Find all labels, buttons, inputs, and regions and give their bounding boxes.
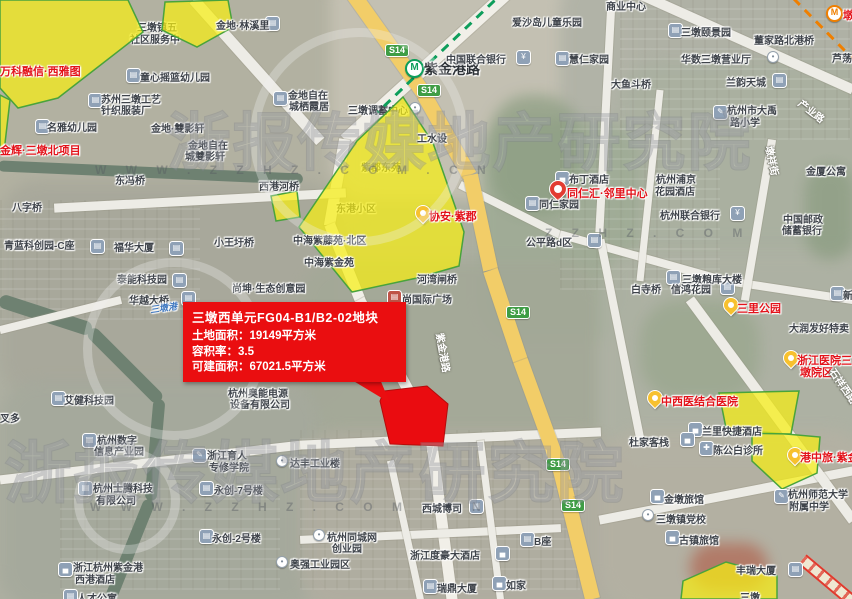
map-label[interactable]: 兰韵天城 [726, 74, 766, 89]
map-label[interactable]: 中海紫金苑 [304, 254, 354, 269]
satellite-map[interactable]: 三墩西单元FG04-B1/B2-02地块 土地面积：19149平方米 容积率：3… [0, 0, 852, 599]
map-label[interactable]: 人才公寓 [77, 590, 117, 599]
parcel-plot-ratio: 容积率：3.5 [192, 345, 397, 361]
map-label[interactable]: 金辉·三墩北项目 [0, 142, 81, 158]
map-label[interactable]: 尚国际广场 [402, 291, 452, 306]
map-label[interactable]: 同仁汇·邻里中心 [567, 185, 648, 201]
map-label[interactable]: 针织服装厂 [101, 102, 151, 117]
map-label[interactable]: 瑞鼎大厦 [437, 580, 477, 595]
watermark-url: W W W . Z Z H Z . C O M . C N [95, 163, 494, 177]
map-label[interactable]: 三墩 [740, 589, 760, 599]
parcel-title: 三墩西单元FG04-B1/B2-02地块 [192, 307, 397, 326]
map-label[interactable]: 福华大厦 [114, 239, 154, 254]
watermark-url: Z Z H Z . C O M [545, 226, 750, 240]
parcel-info-callout: 三墩西单元FG04-B1/B2-02地块 土地面积：19149平方米 容积率：3… [183, 302, 406, 382]
poi-icon[interactable]: ▤ [126, 68, 141, 83]
map-label[interactable]: 港中旅·紫金 [800, 449, 852, 465]
map-label[interactable]: 杭州联合银行 [660, 207, 720, 222]
map-label[interactable]: 白寺桥 [631, 281, 661, 296]
parcel-land-area: 土地面积：19149平方米 [192, 329, 397, 345]
map-label[interactable]: 万科融信·西雅图 [0, 63, 81, 79]
map-label[interactable]: 慧仁家园 [569, 51, 609, 66]
map-label[interactable]: 中国联合银行 [446, 51, 506, 66]
map-label[interactable]: 三墩镇党校 [656, 511, 706, 526]
poi-icon[interactable]: ▤ [423, 579, 438, 594]
map-label[interactable]: 如家 [506, 577, 526, 592]
map-label[interactable]: 三墩颐景园 [681, 24, 731, 39]
map-label[interactable]: 丰瑞大厦 [736, 562, 776, 577]
map-label[interactable]: 金地·林溪里 [216, 17, 269, 32]
poi-icon[interactable]: • [276, 556, 288, 568]
map-label[interactable]: 小王圩桥 [214, 234, 254, 249]
map-label[interactable]: 芦荡 [832, 50, 852, 65]
poi-icon[interactable]: ¥ [730, 206, 745, 221]
watermark-url: W W W . Z Z H Z . C O M . C N [90, 500, 489, 514]
poi-icon[interactable]: • [313, 529, 325, 541]
map-label[interactable]: 商业中心 [606, 0, 646, 13]
map-label[interactable]: 西港酒店 [75, 571, 115, 586]
poi-icon[interactable]: ¥ [516, 50, 531, 65]
poi-icon[interactable]: ▄ [680, 432, 695, 447]
poi-icon[interactable]: ▄ [492, 576, 507, 591]
poi-icon[interactable]: ▄ [495, 546, 510, 561]
map-label[interactable]: 附属中学 [789, 498, 829, 513]
poi-icon[interactable]: ▄ [650, 489, 665, 504]
metro-station-icon[interactable]: M [826, 5, 843, 22]
parcel-buildable-area: 可建面积：67021.5平方米 [192, 360, 397, 376]
poi-icon[interactable]: ▤ [520, 532, 535, 547]
map-label[interactable]: 奥强工业园区 [290, 556, 350, 571]
poi-icon[interactable]: ▤ [90, 239, 105, 254]
poi-icon[interactable]: • [642, 509, 654, 521]
map-label[interactable]: 杜家客栈 [629, 434, 669, 449]
poi-icon[interactable]: ▄ [665, 530, 680, 545]
map-label[interactable]: 信鸿花园 [671, 281, 711, 296]
map-label[interactable]: 古镇旅馆 [679, 532, 719, 547]
map-label[interactable]: 陈公白诊所 [713, 442, 763, 457]
poi-icon[interactable]: ✚ [699, 441, 714, 456]
map-label[interactable]: 爱沙岛儿童乐园 [512, 14, 582, 29]
poi-icon[interactable]: ▤ [169, 241, 184, 256]
map-label[interactable]: 华数三墩营业厅 [681, 51, 751, 66]
map-label[interactable]: 名雅幼儿园 [47, 119, 97, 134]
map-label[interactable]: 大润发好特卖 [789, 320, 849, 335]
poi-icon[interactable]: ▤ [555, 51, 570, 66]
map-label[interactable]: 花园酒店 [655, 183, 695, 198]
poi-icon[interactable]: • [767, 51, 779, 63]
map-label[interactable]: 创业园 [332, 540, 362, 555]
map-label[interactable]: B座 [534, 533, 551, 548]
map-label[interactable]: 董家路北港桥 [754, 32, 814, 47]
map-label[interactable]: 金厦公寓 [806, 163, 846, 178]
map-label[interactable]: 兰里快捷酒店 [702, 423, 762, 438]
map-label[interactable]: 墩 [843, 7, 852, 23]
map-label[interactable]: 青蓝科创园-C座 [4, 237, 75, 252]
map-label[interactable]: 大鱼斗桥 [611, 76, 651, 91]
poi-icon[interactable]: ▤ [525, 196, 540, 211]
poi-icon[interactable]: ▄ [58, 562, 73, 577]
map-label[interactable]: 储蓄银行 [782, 222, 822, 237]
map-label[interactable]: 童心摇篮幼儿园 [140, 69, 210, 84]
poi-icon[interactable]: ▤ [63, 589, 78, 599]
map-label[interactable]: 同仁家园 [539, 196, 579, 211]
map-label[interactable]: 中西医结合医院 [661, 393, 738, 409]
map-label[interactable]: 金墩旅馆 [664, 491, 704, 506]
poi-icon[interactable]: ✎ [774, 489, 789, 504]
road-badge-s14: S14 [506, 306, 530, 319]
map-label[interactable]: 新星 [843, 287, 852, 302]
poi-icon[interactable]: ▤ [772, 73, 787, 88]
map-label[interactable]: 永创-2号楼 [212, 530, 261, 545]
map-label[interactable]: 河湾闸桥 [417, 271, 457, 286]
map-label[interactable]: 浙江度豪大酒店 [410, 547, 480, 562]
map-label[interactable]: 三里公园 [737, 300, 781, 316]
poi-icon[interactable]: ▤ [788, 562, 803, 577]
map-label[interactable]: 八字桥 [12, 199, 42, 214]
